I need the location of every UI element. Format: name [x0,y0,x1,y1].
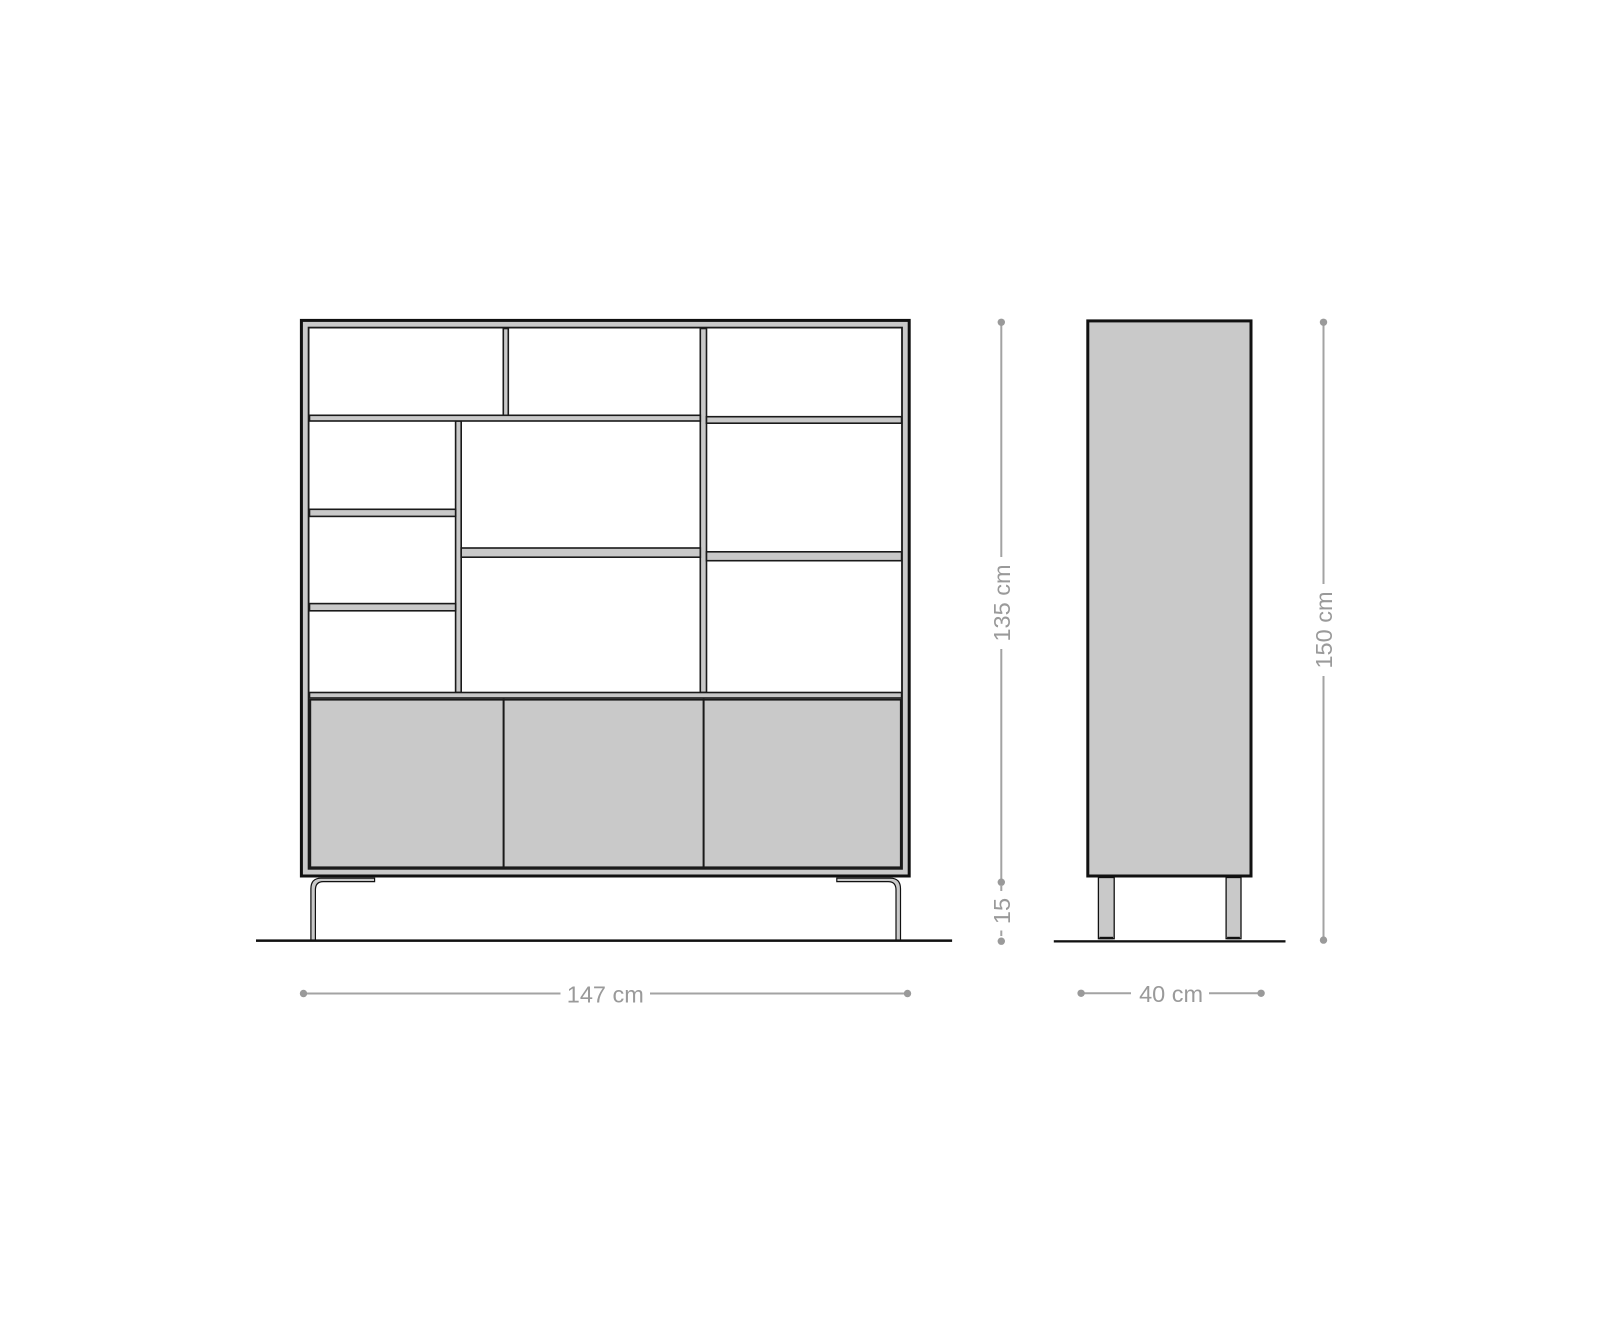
svg-text:40 cm: 40 cm [1139,981,1203,1007]
svg-text:150 cm: 150 cm [1311,591,1337,668]
svg-text:147 cm: 147 cm [567,981,644,1007]
svg-text:15: 15 [989,898,1015,924]
svg-text:135 cm: 135 cm [989,564,1015,641]
